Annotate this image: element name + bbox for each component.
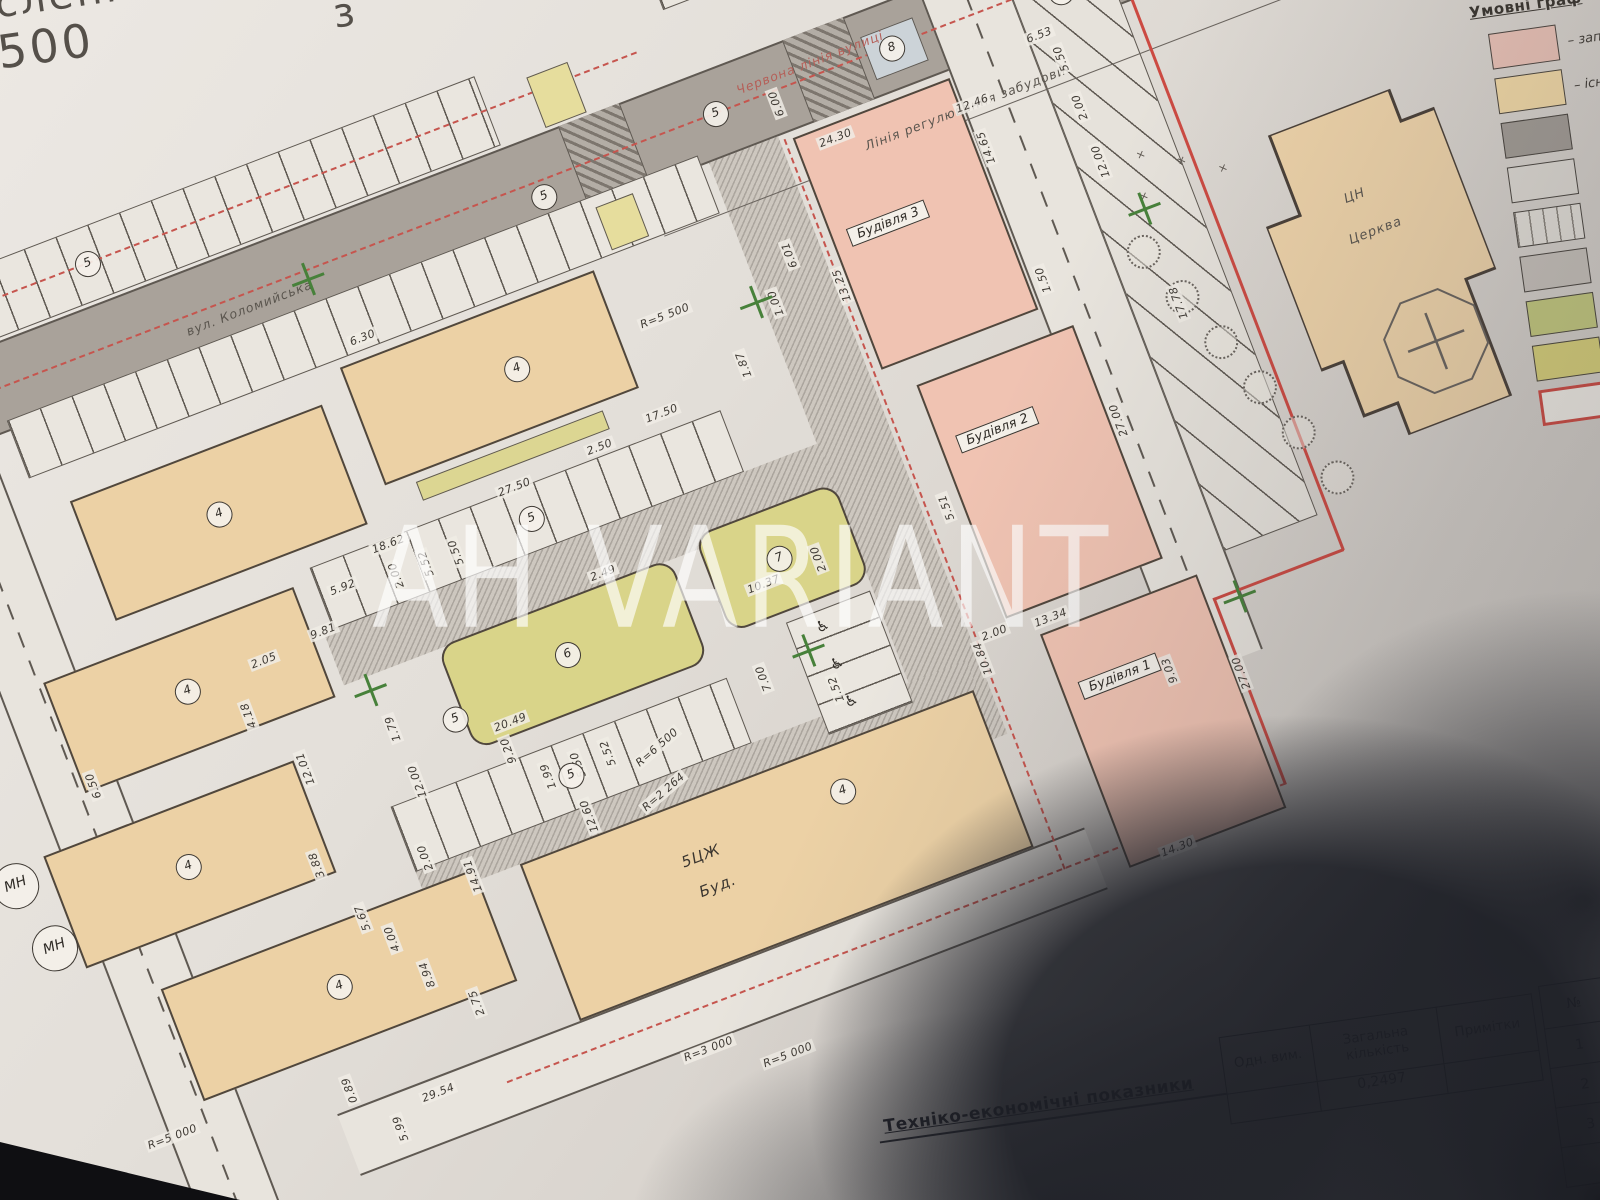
radius-label: R=5 000: [759, 1039, 816, 1071]
legend-swatch-boundary: [1538, 381, 1600, 426]
legend-label: – запр: [1567, 28, 1600, 49]
shrub-mark: ×: [1216, 160, 1229, 175]
dimension-label: 9.20: [497, 734, 520, 767]
number-row: 1: [1544, 1020, 1600, 1069]
legend-label: – існ: [1573, 74, 1600, 93]
indicators-table-title: Техніко-економічні показники: [882, 1073, 1194, 1136]
mn-marker: МН: [0, 856, 46, 915]
legend-swatch-sidewalk: [1507, 158, 1579, 203]
legend-swatch-greenery: [1526, 292, 1598, 337]
legend-swatch-playground: [1532, 336, 1600, 381]
legend-swatch-existing: [1494, 69, 1566, 114]
number-row: 3: [1555, 1100, 1600, 1149]
legend-swatch-paving: [1519, 247, 1591, 292]
number-row: 2: [1550, 1060, 1600, 1109]
dimension-label: 7.00: [752, 662, 775, 695]
radius-label: R=5 500: [636, 300, 693, 332]
number-column-header: №: [1538, 977, 1600, 1030]
sheet-scale-fragment: 500: [0, 13, 97, 80]
legend-swatch-parking: [1513, 203, 1585, 248]
legend-swatch-roadway: [1501, 114, 1573, 159]
dimension-label: 17.50: [642, 401, 682, 427]
dimension-label: 1.87: [732, 348, 755, 381]
dimension-label: 0.89: [338, 1074, 361, 1107]
dimension-label: 1.79: [381, 712, 404, 745]
photographed-site-plan: вул. Коломийська Червона лінія вулиці Лі…: [0, 0, 1600, 1200]
church-building: [1236, 76, 1541, 456]
number-row: [1561, 1139, 1600, 1188]
watermark: AH VARIANT: [372, 498, 1114, 661]
indicators-table-title-cell: Техніко-економічні показники: [876, 1069, 1226, 1143]
dimension-label: 12.00: [404, 761, 430, 801]
row-number-table: № 1 2 3: [1538, 977, 1600, 1188]
